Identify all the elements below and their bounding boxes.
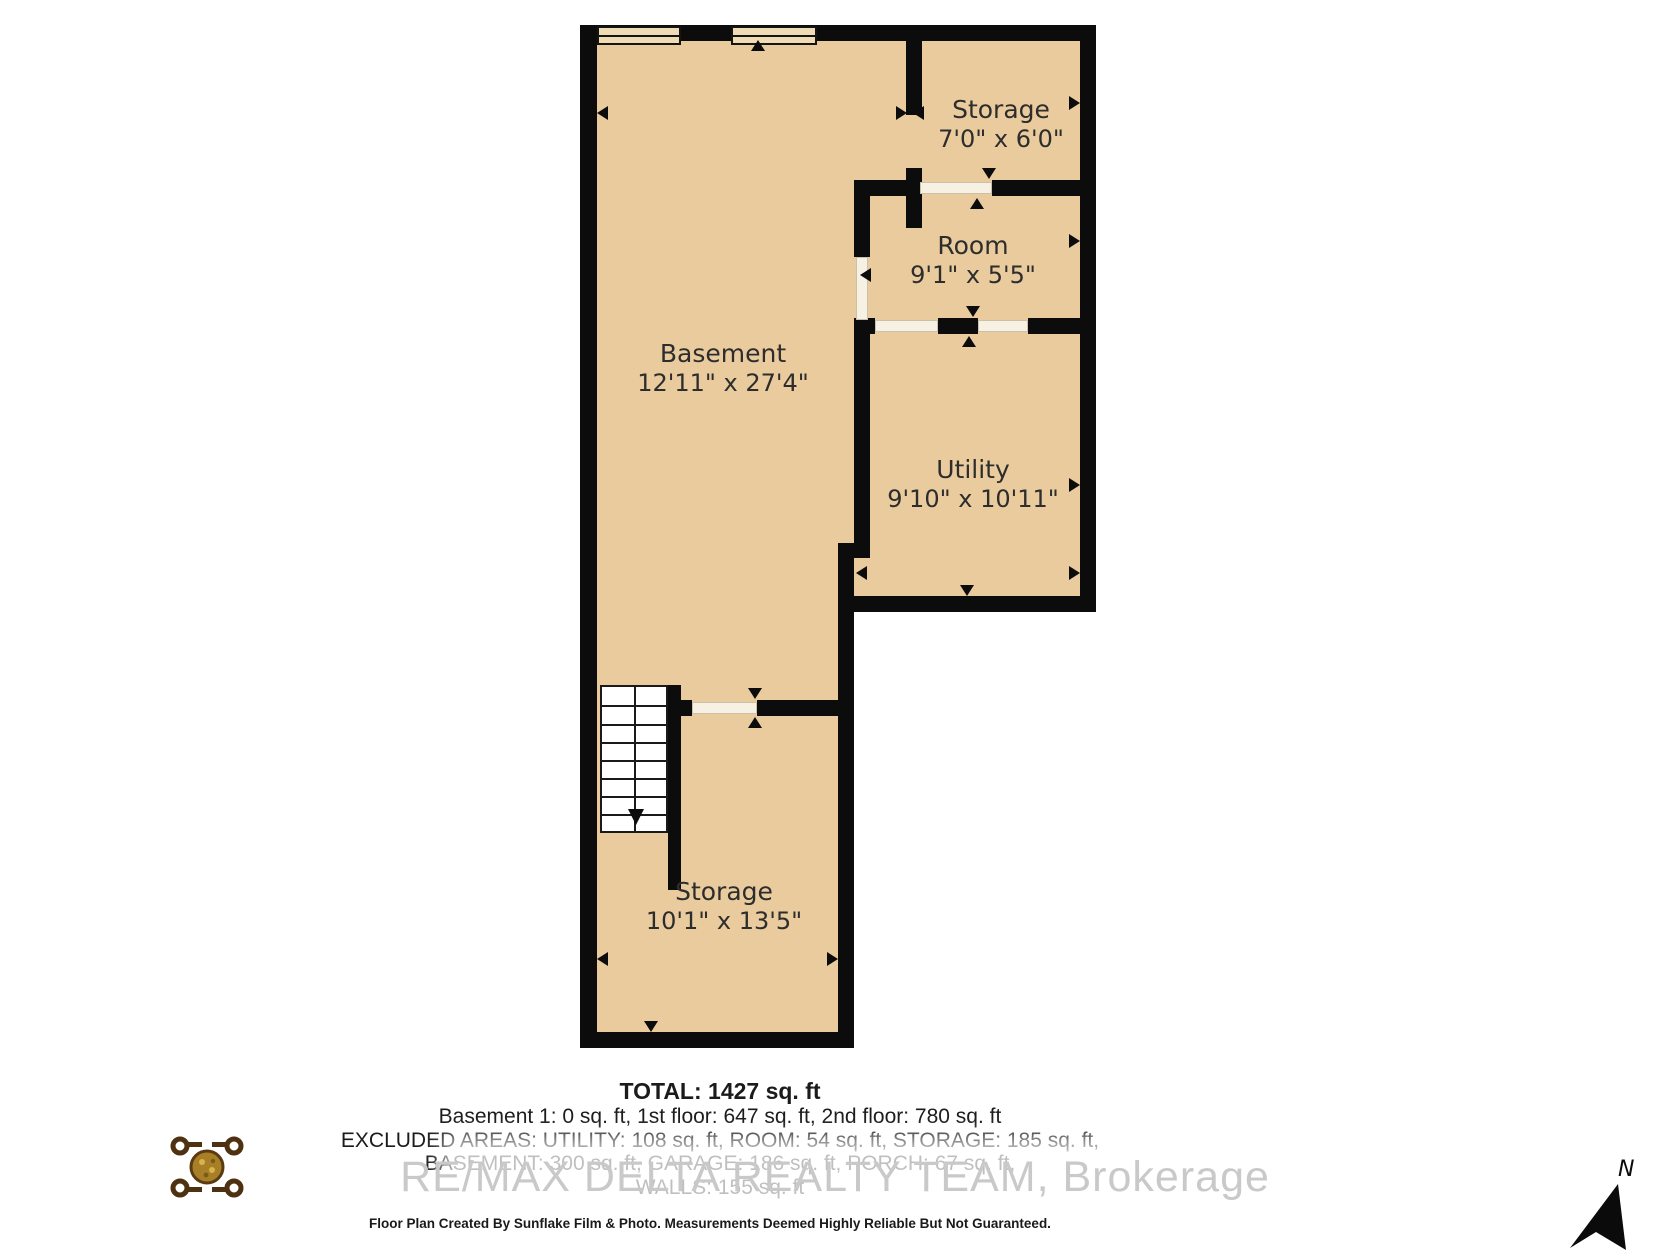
wall-column-right (838, 596, 854, 1048)
door-room-utility-a (875, 320, 938, 332)
room-name: Basement (573, 339, 873, 369)
stair-direction-arrow (634, 693, 636, 811)
room-dims: 12'11" x 27'4" (573, 369, 873, 398)
room-label-basement: Basement 12'11" x 27'4" (573, 339, 873, 398)
wall-left (580, 25, 597, 1048)
compass-label: N (1618, 1158, 1634, 1182)
door-marker-icon (748, 688, 762, 699)
window-marker-icon (751, 40, 765, 51)
room-name: Storage (614, 877, 834, 907)
room-name: Utility (853, 455, 1093, 485)
window-1 (597, 26, 681, 45)
wall-stairs-right (668, 685, 681, 890)
door-marker-icon (960, 585, 974, 596)
wall-storage-divider-stub (906, 168, 922, 228)
brand-logo (162, 1132, 252, 1202)
stair-down-arrow-icon (628, 809, 644, 825)
wall-utility-left-lower (838, 543, 854, 603)
brand-logo-icon (162, 1132, 252, 1202)
door-marker-icon (982, 168, 996, 179)
door-marker-icon (970, 198, 984, 209)
room-dims: 7'0" x 6'0" (901, 125, 1101, 154)
room-label-room: Room 9'1" x 5'5" (873, 231, 1073, 290)
door-room-utility-b (978, 320, 1028, 332)
window-marker-icon (1069, 566, 1080, 580)
total-area-text: TOTAL: 1427 sq. ft (320, 1078, 1120, 1105)
door-marker-icon (597, 106, 608, 120)
window-2 (731, 26, 817, 45)
north-arrow-icon: N (1566, 1158, 1638, 1254)
door-room-left (856, 257, 868, 320)
window-marker-icon (827, 952, 838, 966)
wall-storage-room-b (992, 180, 1080, 196)
window-marker-icon (644, 1021, 658, 1032)
door-basement-storage (692, 702, 757, 714)
room-dims: 9'10" x 10'11" (853, 485, 1093, 514)
wall-room-utility-c (1028, 318, 1080, 334)
wall-bottom (580, 1032, 854, 1048)
door-marker-icon (860, 268, 871, 282)
room-label-storage-top: Storage 7'0" x 6'0" (901, 95, 1101, 154)
room-dims: 9'1" x 5'5" (873, 261, 1073, 290)
brokerage-watermark: RE/MAX DELTA REALTY TEAM, Brokerage (455, 1150, 1215, 1204)
wall-basement-storage-b (757, 700, 854, 716)
wall-utility-bottom (838, 596, 1096, 612)
wall-room-utility-b (938, 318, 978, 334)
window-marker-icon (597, 952, 608, 966)
door-marker-icon (962, 336, 976, 347)
room-name: Storage (901, 95, 1101, 125)
door-marker-icon (748, 717, 762, 728)
room-dims: 10'1" x 13'5" (614, 907, 834, 936)
door-storage-room (920, 182, 992, 194)
door-marker-icon (856, 566, 867, 580)
room-label-storage-bottom: Storage 10'1" x 13'5" (614, 877, 834, 936)
floor-plan-page: Storage 7'0" x 6'0" Room 9'1" x 5'5" Bas… (0, 0, 1680, 1260)
excluded-area-text-1: EXCLUDED AREAS: UTILITY: 108 sq. ft, ROO… (320, 1129, 1120, 1153)
room-name: Room (873, 231, 1073, 261)
floors-area-text: Basement 1: 0 sq. ft, 1st floor: 647 sq.… (320, 1105, 1120, 1129)
staircase (600, 685, 668, 833)
compass: N (1566, 1158, 1638, 1254)
disclaimer-text: Floor Plan Created By Sunflake Film & Ph… (310, 1216, 1110, 1231)
window-mullion (733, 35, 815, 37)
window-mullion (599, 35, 679, 37)
room-label-utility: Utility 9'10" x 10'11" (853, 455, 1093, 514)
wall-room-left-a (854, 180, 870, 257)
door-marker-icon (966, 306, 980, 317)
